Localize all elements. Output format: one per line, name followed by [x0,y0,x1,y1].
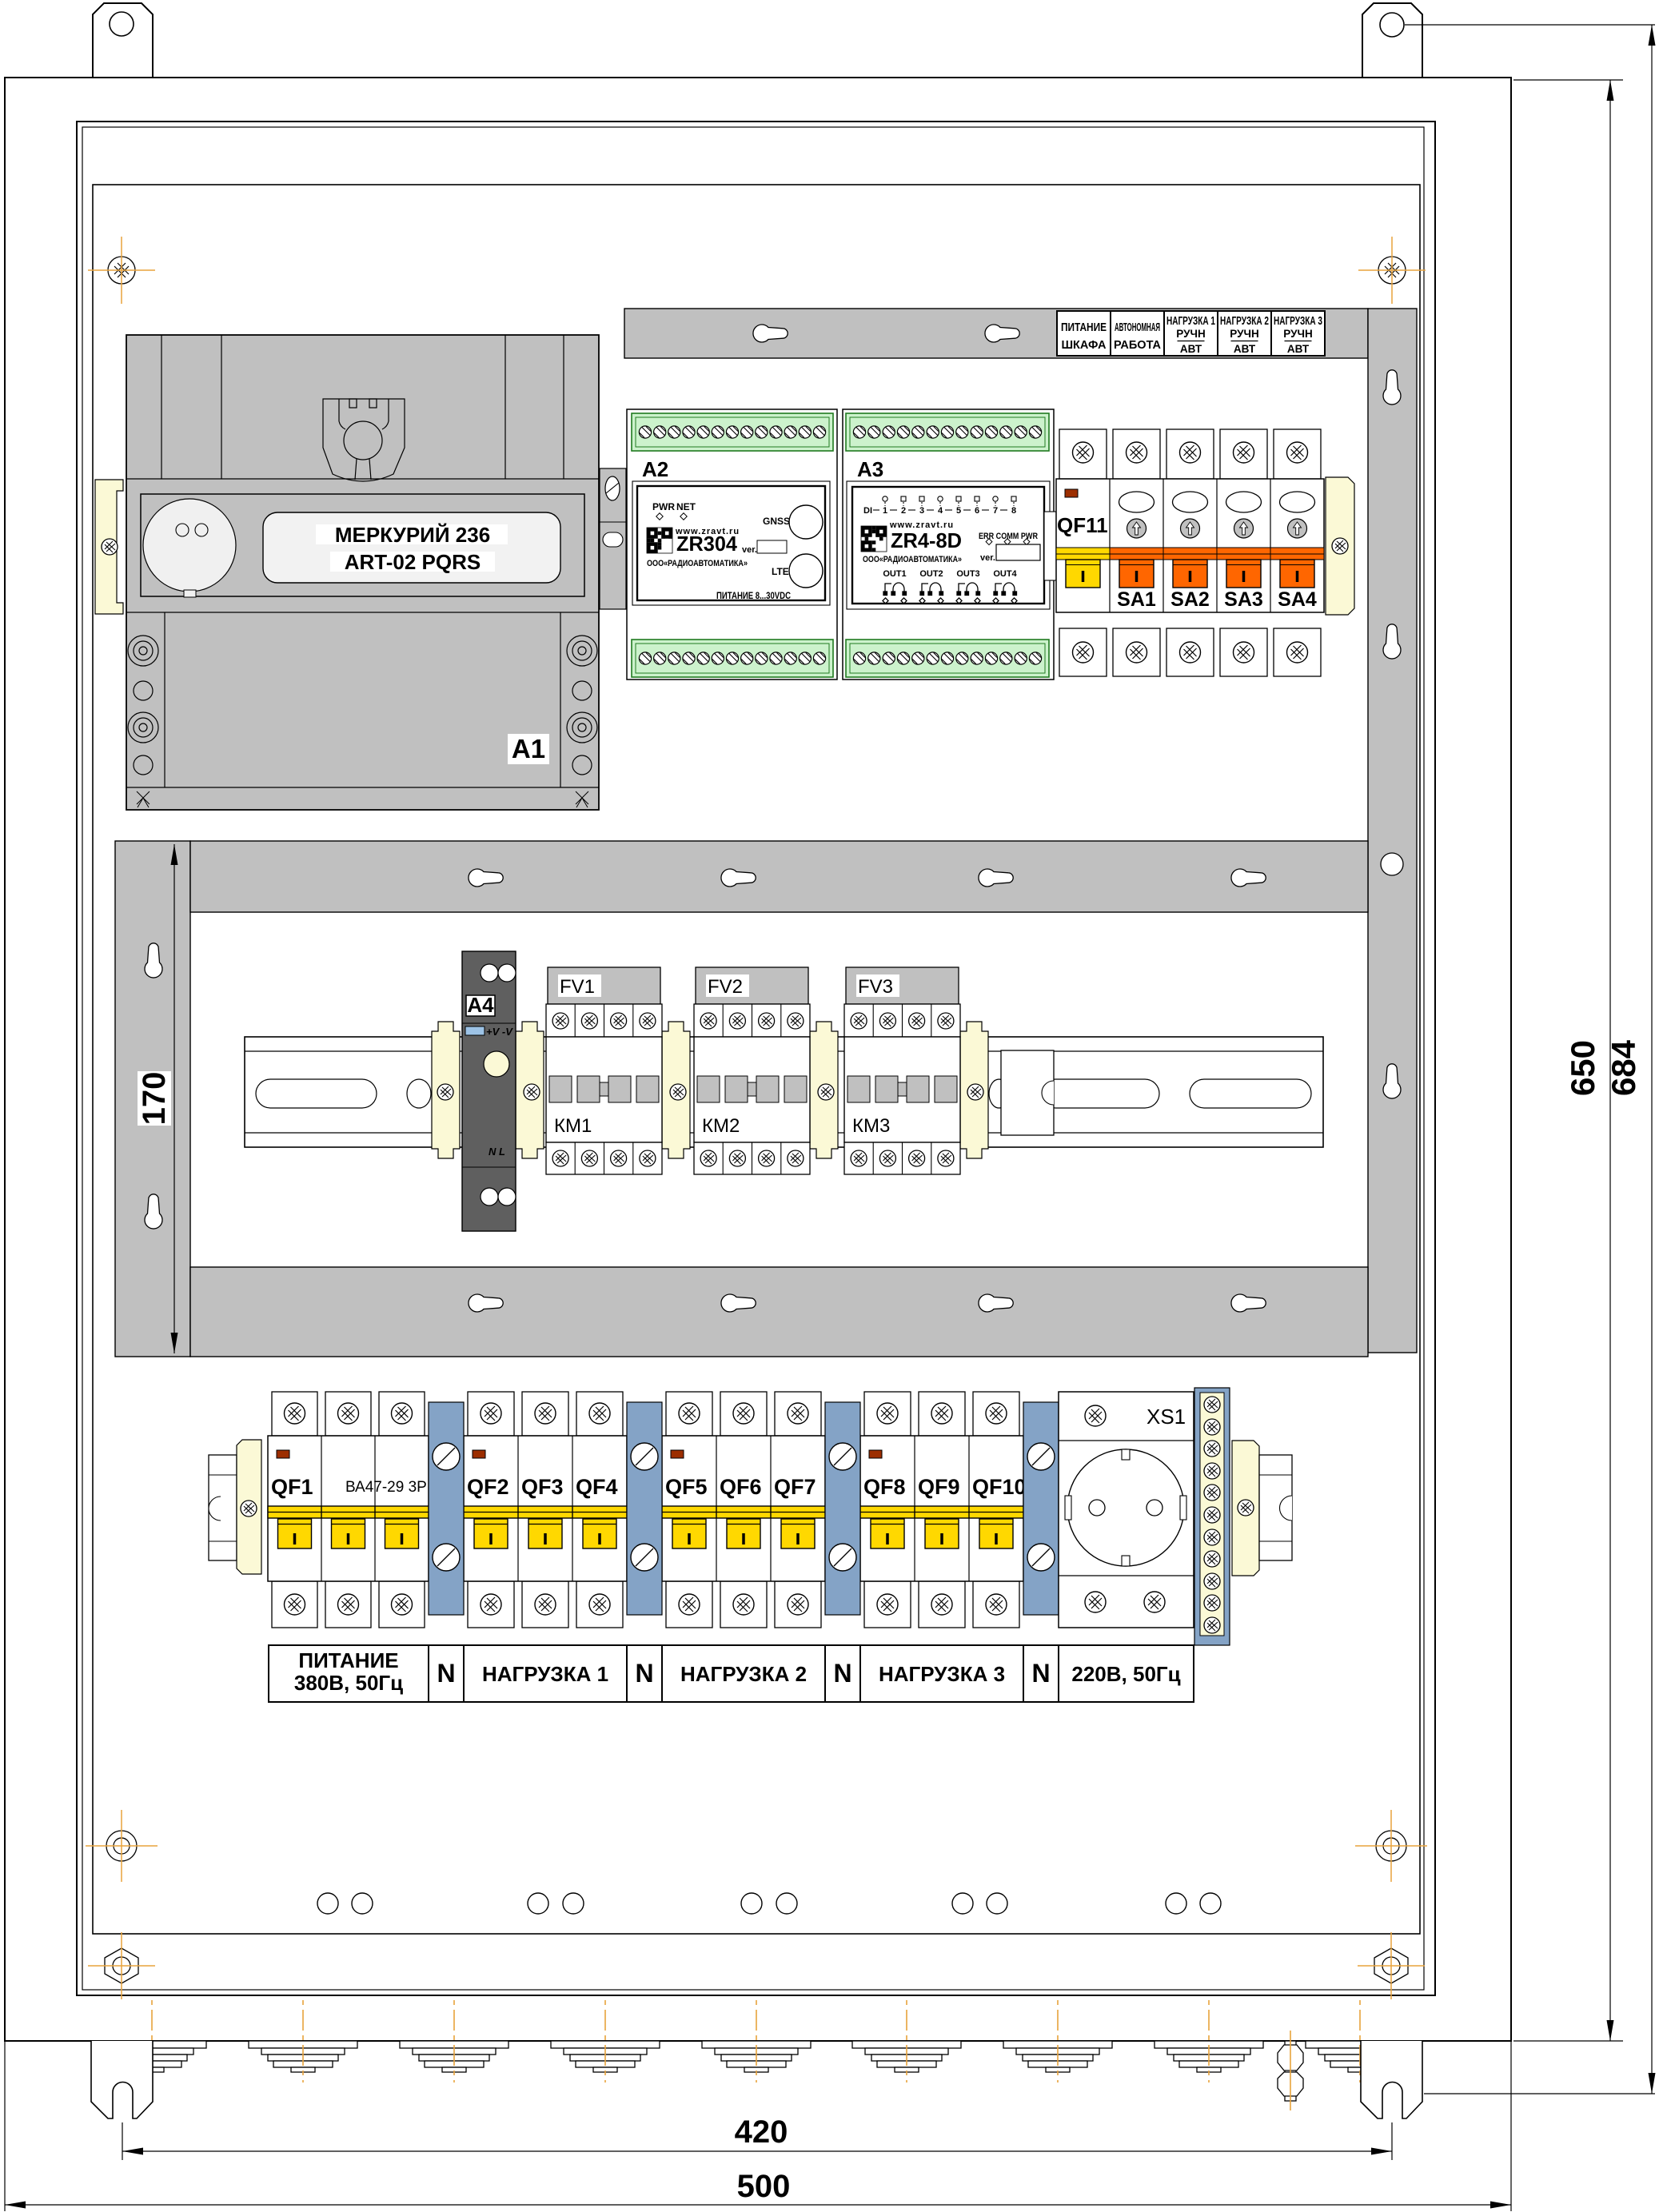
svg-text:РУЧН: РУЧН [1283,328,1312,340]
svg-text:SA2: SA2 [1170,588,1210,611]
svg-text:МЕРКУРИЙ 236: МЕРКУРИЙ 236 [335,523,490,547]
svg-text:QF8: QF8 [863,1475,906,1499]
svg-text:РУЧН: РУЧН [1230,328,1258,340]
svg-text:QF1: QF1 [271,1475,313,1499]
svg-text:АВТ: АВТ [1287,343,1310,355]
svg-text:QF7: QF7 [774,1475,816,1499]
svg-text:ВА47-29 3Р: ВА47-29 3Р [345,1479,427,1496]
svg-text:НАГРУЗКА 2: НАГРУЗКА 2 [680,1662,807,1686]
svg-text:НАГРУЗКА 3: НАГРУЗКА 3 [879,1662,1005,1686]
svg-text:QF3: QF3 [521,1475,564,1499]
svg-text:N L: N L [489,1146,505,1158]
svg-text:OUT4: OUT4 [993,569,1017,579]
svg-text:ПИТАНИЕ 8...30VDC: ПИТАНИЕ 8...30VDC [716,590,791,601]
svg-text:PWR: PWR [652,501,675,512]
svg-text:РАБОТА: РАБОТА [1114,339,1162,352]
svg-text:N: N [1031,1659,1050,1688]
svg-text:GNSS: GNSS [763,516,790,527]
svg-text:ООО«РАДИОАВТОМАТИКА»: ООО«РАДИОАВТОМАТИКА» [647,559,748,568]
svg-text:КМ2: КМ2 [702,1115,740,1137]
svg-text:N: N [635,1659,653,1688]
svg-text:A4: A4 [467,993,494,1017]
svg-text:8: 8 [1011,506,1016,516]
svg-text:5: 5 [956,506,961,516]
svg-text:FV1: FV1 [560,976,595,998]
svg-text:НАГРУЗКА 1: НАГРУЗКА 1 [1166,315,1215,328]
svg-text:N: N [833,1659,851,1688]
svg-text:220В, 50Гц: 220В, 50Гц [1071,1662,1180,1686]
svg-text:OUT1: OUT1 [883,569,906,579]
svg-text:ПИТАНИЕ: ПИТАНИЕ [1061,321,1107,334]
svg-text:420: 420 [735,2114,788,2150]
svg-text:НАГРУЗКА 3: НАГРУЗКА 3 [1274,315,1322,328]
svg-text:ZR304: ZR304 [676,532,738,556]
svg-text:NET: NET [676,501,696,512]
svg-text:FV3: FV3 [858,976,893,998]
svg-text:QF5: QF5 [665,1475,708,1499]
svg-text:ZR4-8D: ZR4-8D [891,528,962,552]
svg-text:НАГРУЗКА 1: НАГРУЗКА 1 [482,1662,608,1686]
svg-text:6: 6 [975,506,979,516]
svg-text:A1: A1 [512,734,545,763]
svg-text:QF11: QF11 [1057,513,1108,537]
svg-text:РУЧН: РУЧН [1176,328,1205,340]
svg-text:7: 7 [993,506,998,516]
svg-text:1: 1 [883,506,887,516]
svg-text:ПИТАНИЕ: ПИТАНИЕ [298,1648,398,1672]
svg-text:OUT3: OUT3 [956,569,979,579]
svg-text:170: 170 [137,1072,172,1126]
svg-text:QF6: QF6 [720,1475,762,1499]
svg-text:АВТОНОМНАЯ: АВТОНОМНАЯ [1115,321,1160,334]
svg-text:АВТ: АВТ [1180,343,1202,355]
svg-text:SA3: SA3 [1224,588,1263,611]
svg-text:ООО«РАДИОАВТОМАТИКА»: ООО«РАДИОАВТОМАТИКА» [863,555,962,564]
svg-text:684: 684 [1605,1039,1642,1096]
svg-text:500: 500 [737,2169,791,2204]
svg-text:SA4: SA4 [1278,588,1317,611]
svg-text:XS1: XS1 [1147,1405,1186,1429]
svg-text:+V -V: +V -V [486,1026,513,1038]
svg-text:КМ1: КМ1 [554,1115,592,1137]
svg-text:650: 650 [1564,1040,1601,1096]
svg-text:LTE: LTE [772,566,789,577]
svg-text:ШКАФА: ШКАФА [1061,339,1107,352]
svg-text:QF2: QF2 [467,1475,509,1499]
svg-text:КМ3: КМ3 [852,1115,890,1137]
svg-text:ver.: ver. [742,545,757,555]
svg-text:3: 3 [919,506,924,516]
svg-text:DI: DI [863,506,872,516]
svg-text:A3: A3 [857,457,883,481]
svg-text:ver.: ver. [980,553,995,563]
svg-text:НАГРУЗКА 2: НАГРУЗКА 2 [1220,315,1269,328]
svg-text:QF9: QF9 [918,1475,960,1499]
svg-text:QF10: QF10 [972,1475,1027,1499]
svg-text:SA1: SA1 [1117,588,1156,611]
svg-text:АВТ: АВТ [1234,343,1256,355]
svg-text:A2: A2 [642,457,668,481]
svg-text:2: 2 [901,506,906,516]
svg-text:ART-02 PQRS: ART-02 PQRS [345,550,481,574]
svg-text:OUT2: OUT2 [919,569,943,579]
svg-text:4: 4 [938,506,943,516]
svg-text:N: N [437,1659,455,1688]
svg-text:FV2: FV2 [708,976,743,998]
svg-text:380В, 50Гц: 380В, 50Гц [294,1671,403,1695]
svg-text:QF4: QF4 [576,1475,618,1499]
